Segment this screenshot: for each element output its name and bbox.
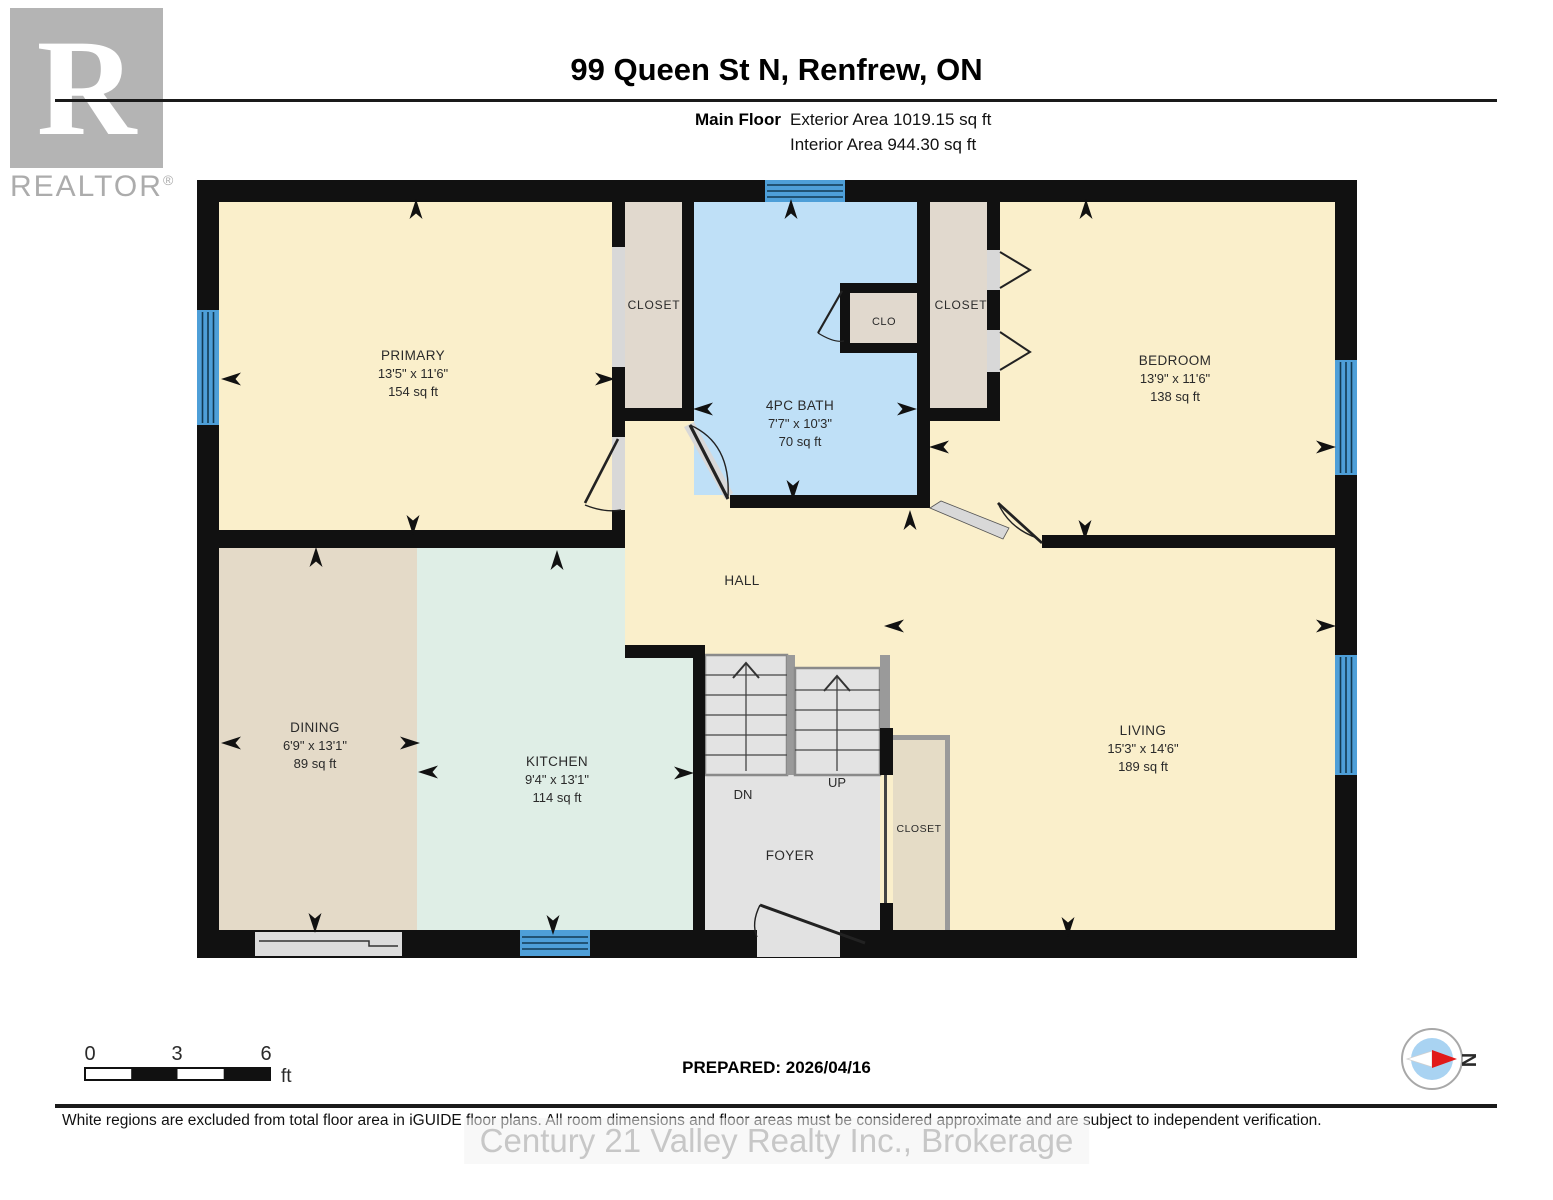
realtor-logo: R — [10, 8, 163, 168]
dining-dims: 6'9" x 13'1" — [283, 738, 347, 753]
clo-label: CLO — [872, 316, 896, 328]
realtor-wordmark-text: REALTOR — [10, 170, 163, 203]
living-window — [1335, 655, 1357, 775]
stairs-up-label: UP — [828, 775, 846, 790]
living-area: 189 sq ft — [1118, 759, 1168, 774]
primary-window — [197, 310, 219, 425]
kitchen-dims: 9'4" x 13'1" — [525, 772, 589, 787]
page-title: 99 Queen St N, Renfrew, ON — [0, 52, 1553, 88]
dining-area: 89 sq ft — [294, 756, 337, 771]
footer-divider — [55, 1104, 1497, 1108]
stairs-up — [795, 668, 880, 775]
primary-dims: 13'5" x 11'6" — [378, 366, 449, 381]
living-dims: 15'3" x 14'6" — [1107, 741, 1179, 756]
prepared-date-label: PREPARED: 2026/04/16 — [0, 1058, 1553, 1078]
foyer-closet-label: CLOSET — [896, 823, 941, 835]
foyer-closet-track-right — [945, 735, 950, 930]
bedroom-closet-opening-1 — [987, 250, 1000, 290]
interior-area-label: Interior Area 944.30 sq ft — [790, 135, 976, 155]
realtor-logo-r-icon: R — [37, 19, 137, 157]
bedroom-closet-opening-2 — [987, 330, 1000, 372]
bath-dims: 7'7" x 10'3" — [768, 416, 832, 431]
entry-threshold — [757, 930, 840, 957]
living-label: LIVING — [1120, 723, 1167, 738]
header-divider — [55, 99, 1497, 102]
primary-closet-label: CLOSET — [628, 298, 681, 312]
kitchen-window — [520, 930, 590, 956]
foyer-closet-track-top — [893, 735, 945, 740]
foyer-label: FOYER — [766, 848, 815, 863]
bedroom-label: BEDROOM — [1139, 353, 1212, 368]
bedroom-closet-label: CLOSET — [935, 298, 988, 312]
compass-north-label: N — [1457, 1053, 1479, 1067]
dining-label: DINING — [290, 720, 340, 735]
bath-area: 70 sq ft — [779, 434, 822, 449]
primary-label: PRIMARY — [381, 348, 445, 363]
kitchen-label: KITCHEN — [526, 754, 588, 769]
foyer-closet-floor — [893, 740, 945, 930]
bath-window — [765, 180, 845, 202]
bedroom-area: 138 sq ft — [1150, 389, 1200, 404]
registered-symbol: ® — [163, 172, 175, 188]
stair-stub-wall — [880, 655, 890, 730]
stairs-dn — [705, 655, 787, 775]
foyer-closet-door-panel — [884, 775, 887, 903]
realtor-wordmark: REALTOR® — [10, 170, 175, 204]
bedroom-dims: 13'9" x 11'6" — [1140, 371, 1211, 386]
compass-icon: N — [1398, 1026, 1480, 1094]
stairs-dn-label: DN — [734, 787, 753, 802]
floor-name-label: Main Floor — [695, 110, 781, 130]
floor-plan-page: R REALTOR® 99 Queen St N, Renfrew, ON Ma… — [0, 0, 1553, 1200]
exterior-area-label: Exterior Area 1019.15 sq ft — [790, 110, 991, 130]
brokerage-watermark: Century 21 Valley Realty Inc., Brokerage — [464, 1118, 1090, 1164]
bath-label: 4PC BATH — [766, 398, 834, 413]
hall-label: HALL — [724, 573, 759, 588]
primary-area: 154 sq ft — [388, 384, 438, 399]
primary-closet-opening — [612, 247, 625, 367]
floor-plan-drawing: PRIMARY 13'5" x 11'6" 154 sq ft CLOSET 4… — [197, 175, 1357, 967]
bedroom-window — [1335, 360, 1357, 475]
dining-patio-door — [255, 932, 402, 956]
kitchen-area: 114 sq ft — [533, 790, 582, 805]
